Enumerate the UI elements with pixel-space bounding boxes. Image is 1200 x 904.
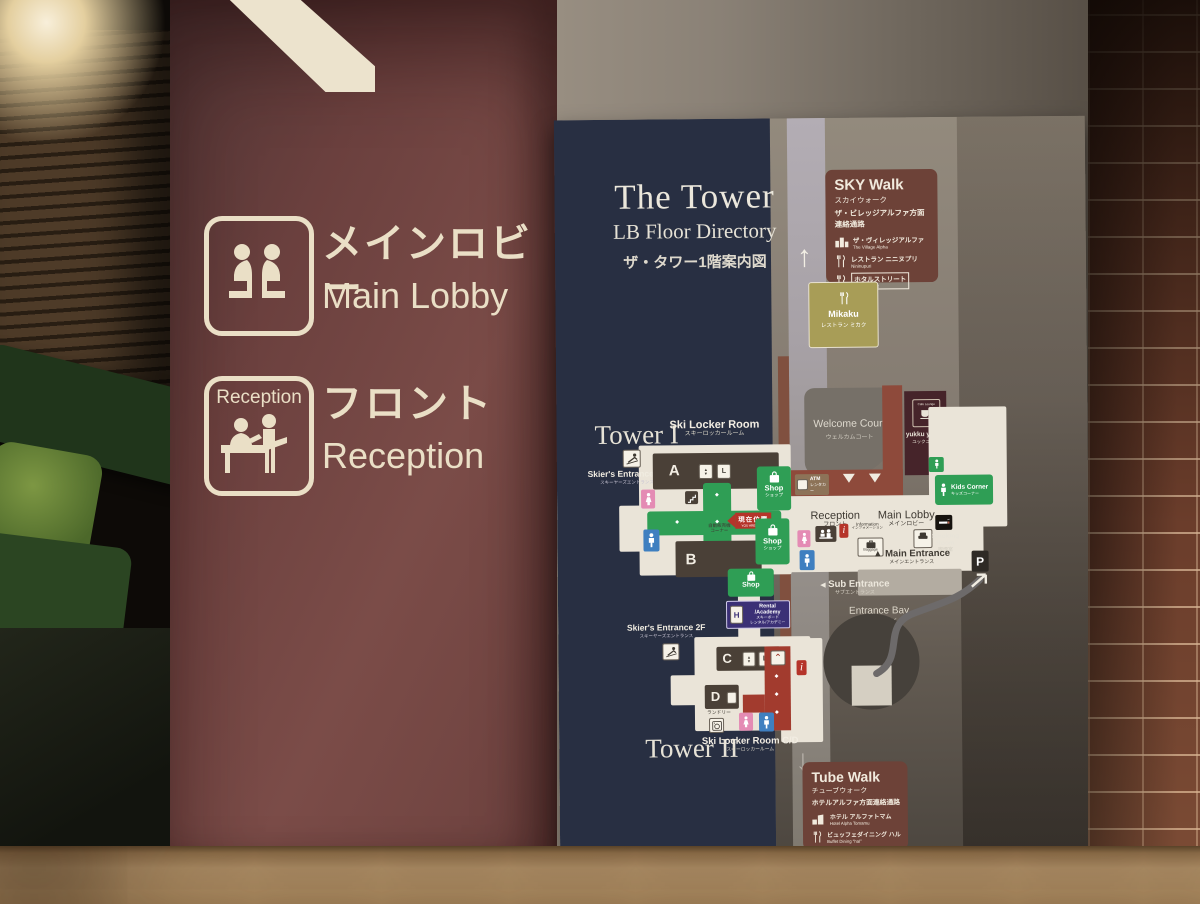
sky-walk-title: SKY Walk bbox=[834, 176, 930, 194]
directory-board: The Tower LB Floor Directory ザ・タワー1階案内図 … bbox=[554, 116, 1091, 863]
sky-walk-item-en: The Village Alpha bbox=[853, 244, 924, 250]
parking-letter: P bbox=[976, 554, 984, 568]
welcome-court-jp: ウェルカムコート bbox=[805, 431, 895, 441]
tube-walk-jp: チューブウォーク bbox=[812, 785, 901, 796]
sky-walk-jp: スカイウォーク bbox=[834, 194, 930, 206]
tower2-west-stub bbox=[671, 675, 699, 705]
information-label: Information インフォメーション bbox=[845, 521, 889, 530]
lobby-seats-icon bbox=[220, 241, 294, 307]
diamond-marker: ◆ bbox=[715, 493, 719, 498]
maroon-wall: メインロビー Main Lobby Reception フロント bbox=[170, 0, 557, 860]
laundry-text: ランドリー bbox=[699, 711, 739, 717]
shopping-bag-icon bbox=[767, 470, 780, 483]
shop-jp: ショップ bbox=[757, 492, 791, 498]
atm-icon bbox=[797, 479, 808, 490]
sky-walk-item: レストラン ニニヌプリ Nininupuri bbox=[835, 253, 931, 269]
shop-en: Shop bbox=[728, 581, 774, 588]
restroom-male-icon bbox=[643, 529, 659, 551]
skiers-entrance-label-2: Skier's Entrance 2F スキーヤーズエントランス bbox=[606, 623, 726, 639]
mikaku-en: Mikaku bbox=[809, 309, 877, 320]
entrance-bay-building bbox=[852, 665, 892, 705]
speaker-icon bbox=[727, 692, 737, 704]
building-d-block: D bbox=[705, 685, 739, 709]
restaurant-icon bbox=[838, 292, 849, 305]
baby-room-icon bbox=[929, 457, 944, 472]
building-a-letter: A bbox=[669, 462, 680, 479]
triangle-down-icon bbox=[869, 473, 881, 482]
tube-walk-item-jp: ホテル アルファトマム bbox=[830, 811, 892, 821]
locker-icon: L bbox=[717, 464, 731, 479]
shop-box-2: Shop ショップ bbox=[755, 518, 789, 564]
sky-walk-dest1: ザ・ビレッジアルファ方面 bbox=[835, 207, 931, 219]
board-subtitle-jp: ザ・タワー1階案内図 bbox=[585, 250, 805, 273]
main-lobby-sign-en: Main Lobby bbox=[322, 276, 552, 316]
ski-locker-room-jp: スキーロッカールーム bbox=[644, 431, 784, 439]
triangle-up-icon: ▲ bbox=[873, 548, 883, 559]
reception-sign-box-label: Reception bbox=[209, 387, 309, 408]
information-jp: インフォメーション bbox=[845, 526, 889, 530]
main-entrance-en: Main Entrance bbox=[885, 548, 950, 560]
mikaku-box: Mikaku レストラン ミカク bbox=[808, 282, 879, 349]
shop-en: Shop bbox=[755, 536, 789, 545]
map-main-lobby-en: Main Lobby bbox=[871, 509, 941, 522]
ski-locker-cd-en: Ski Locker Room C/D bbox=[685, 736, 815, 748]
map-reception-en: Reception bbox=[803, 510, 867, 523]
tube-walk-item: ビュッフェダイニング ハル Buffet Dining "hal" bbox=[812, 829, 901, 844]
triangle-down-icon bbox=[843, 474, 855, 483]
parking-icon: P bbox=[972, 551, 989, 572]
building-d-letter: D bbox=[711, 689, 721, 704]
restaurant-icon bbox=[835, 255, 846, 268]
board-title-block: The Tower LB Floor Directory ザ・タワー1階案内図 bbox=[584, 176, 805, 273]
diamond-marker: ◆ bbox=[775, 692, 779, 697]
sub-entrance-en: Sub Entrance bbox=[828, 578, 889, 590]
elevator-icon: ▲▼ bbox=[742, 652, 755, 667]
rental-icon: H bbox=[730, 606, 743, 624]
restroom-male-icon bbox=[759, 712, 774, 731]
reception-sign-en: Reception bbox=[322, 436, 552, 476]
cafe-lounge-tag: Cafe Lounge bbox=[913, 402, 939, 406]
shop-en: Shop bbox=[757, 483, 791, 492]
tube-walk-item: ホテル アルファトマム Hotel Alpha Tomamu bbox=[812, 811, 901, 826]
sky-walk-dest2: 連絡通路 bbox=[835, 218, 931, 230]
white-arrow-shape bbox=[210, 0, 375, 92]
atm-rentacar-chip: ATM レンタカー bbox=[795, 474, 829, 495]
main-entrance-jp: メインエントランス bbox=[864, 559, 960, 565]
sub-entrance-jp: サブエントランス bbox=[810, 590, 900, 596]
diamond-marker: ◆ bbox=[775, 674, 779, 679]
hotel-building-icon bbox=[812, 813, 826, 824]
brick-wall bbox=[1088, 0, 1200, 904]
tube-walk-title: Tube Walk bbox=[811, 768, 900, 785]
information-icon: i bbox=[796, 660, 806, 675]
elevator-icon: ▲▼ bbox=[699, 464, 713, 479]
restroom-female-icon bbox=[739, 713, 753, 731]
ceiling-light-glow bbox=[0, 0, 170, 150]
tower2-red-stub bbox=[743, 695, 765, 713]
sky-walk-item-jp: レストラン ニニヌプリ bbox=[851, 253, 918, 264]
smoking-en: Smoking Room bbox=[923, 533, 967, 548]
ski-locker-room-label: Ski Locker Room スキーロッカールーム bbox=[644, 418, 784, 438]
sky-walk-item-jp: ザ・ヴィレッジアルファ bbox=[853, 234, 925, 245]
diamond-marker: ◆ bbox=[775, 710, 779, 715]
building-c-letter: C bbox=[722, 651, 732, 666]
skier-icon bbox=[662, 643, 679, 660]
stairs-icon bbox=[685, 491, 698, 504]
rental-line3: レンタル/アカデミー bbox=[746, 620, 789, 625]
shop-jp: ショップ bbox=[755, 545, 789, 551]
reception-sign-jp: フロント bbox=[322, 382, 552, 427]
lobby-photo-scene: メインロビー Main Lobby Reception フロント bbox=[0, 0, 1200, 904]
tube-walk-item-en: Buffet Dining "hal" bbox=[827, 838, 901, 844]
ski-locker-cd-label: Ski Locker Room C/D スキーロッカールーム bbox=[685, 736, 815, 753]
rental-line1: Rental /Academy bbox=[746, 603, 789, 615]
shop-box-1: Shop ショップ bbox=[757, 466, 791, 510]
kids-corner-box: Kids Corner キッズコーナー bbox=[935, 475, 993, 506]
atm-line2: レンタカー bbox=[810, 481, 829, 493]
sky-walk-box: SKY Walk スカイウォーク ザ・ビレッジアルファ方面 連絡通路 ザ・ヴィレ… bbox=[825, 169, 938, 283]
skiers-entrance-jp: スキーヤーズエントランス bbox=[606, 632, 726, 638]
sky-walk-item-en: Nininupuri bbox=[851, 263, 918, 269]
laundry-label: ランドリー bbox=[699, 711, 739, 717]
board-title: The Tower bbox=[584, 176, 804, 218]
reception-sign: Reception フロント Reception bbox=[204, 374, 544, 494]
laundry-washer-icon bbox=[709, 718, 724, 733]
vending-corner-label: 自動販売機 コーナー bbox=[699, 523, 739, 533]
sub-entrance-label: ◀ Sub Entrance サブエントランス bbox=[810, 579, 900, 596]
restroom-female-icon bbox=[797, 530, 810, 547]
village-building-icon bbox=[835, 237, 849, 248]
mikaku-jp: レストラン ミカク bbox=[810, 321, 878, 330]
restaurant-icon bbox=[812, 831, 822, 843]
tube-walk-box: Tube Walk チューブウォーク ホテルアルファ方面連絡通路 ホテル アルフ… bbox=[802, 761, 908, 850]
main-entrance-label: ▲ Main Entrance メインエントランス bbox=[864, 549, 960, 566]
kids-corner-jp: キッズコーナー bbox=[951, 490, 988, 496]
board-subtitle: LB Floor Directory bbox=[585, 218, 805, 245]
shopping-bag-icon bbox=[745, 571, 756, 582]
lobby-photo-left bbox=[0, 0, 170, 904]
welcome-court-en: Welcome Court bbox=[804, 417, 894, 430]
reception-counter-icon bbox=[815, 526, 836, 542]
diamond-marker: ◆ bbox=[675, 520, 679, 525]
building-b-letter: B bbox=[686, 551, 697, 568]
reception-desk-icon bbox=[219, 413, 297, 483]
wood-floor bbox=[0, 846, 1200, 904]
main-lobby-sign: メインロビー Main Lobby bbox=[204, 214, 544, 334]
tube-walk-item-jp: ビュッフェダイニング ハル bbox=[827, 829, 901, 839]
skier-icon bbox=[623, 450, 641, 468]
triangle-left-icon: ◀ bbox=[820, 582, 825, 589]
vending-line2: コーナー bbox=[699, 528, 739, 533]
ski-locker-cd-jp: スキーロッカールーム bbox=[685, 747, 815, 753]
smoking-icon bbox=[935, 515, 952, 530]
tube-walk-dest1: ホテルアルファ方面連絡通路 bbox=[812, 796, 901, 807]
kids-icon bbox=[939, 483, 948, 497]
tube-walk-item-en: Hotel Alpha Tomamu bbox=[830, 820, 892, 826]
shopping-bag-icon bbox=[766, 523, 779, 536]
rental-academy-box: H Rental /Academy スキーボード レンタル/アカデミー bbox=[726, 600, 790, 629]
corridor-up-arrow-icon: ↑ bbox=[797, 240, 812, 274]
sky-walk-item: ザ・ヴィレッジアルファ The Village Alpha bbox=[835, 234, 931, 250]
reception-sign-iconbox: Reception bbox=[204, 376, 314, 496]
main-lobby-sign-iconbox bbox=[204, 216, 314, 336]
restroom-female-icon bbox=[641, 489, 655, 508]
shop-box-3: Shop bbox=[728, 568, 774, 596]
kids-corner-en: Kids Corner bbox=[951, 483, 988, 490]
escalator-up-icon: ⌃ bbox=[770, 650, 785, 665]
restroom-male-icon bbox=[800, 550, 815, 570]
